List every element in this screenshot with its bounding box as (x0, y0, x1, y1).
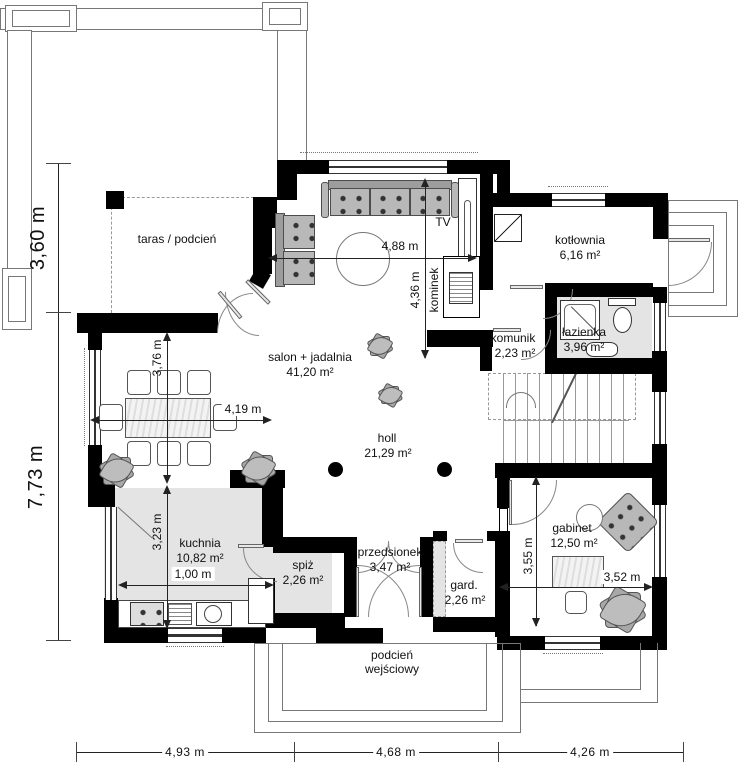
boiler-unit (494, 214, 522, 242)
dim-left-lower-label: 7,73 m (29, 445, 43, 509)
window-dining-west (89, 350, 101, 445)
sofa-small-seat-1 (283, 215, 315, 249)
room-label-przedsionek-area: 3,47 m² (370, 560, 411, 574)
wall-bathroom-south (545, 358, 653, 374)
wall-west-jog (88, 477, 115, 507)
wall-salon-east (480, 160, 493, 290)
kitchen-dishwasher (168, 603, 192, 625)
dining-table (125, 398, 211, 438)
wall-west-b (88, 445, 102, 477)
room-label-taras: taras / podcień (138, 232, 217, 246)
room-label-gabinet-name: gabinet (552, 521, 591, 535)
room-label-przedsionek-name: przedsionek (358, 545, 423, 559)
dim-left-lower-line (58, 313, 59, 641)
sofa-large-seat-2 (370, 188, 410, 216)
room-label-holl-area: 21,29 m² (364, 446, 411, 460)
sofa-large-arm-left (321, 182, 329, 218)
sill-salon-north (300, 152, 478, 153)
dim-dining-height-label: 3,76 m (150, 340, 164, 377)
dim-gabinet-width-arrow-right (644, 583, 653, 591)
dining-chair-top-1 (127, 370, 151, 395)
room-label-lazienka-area: 3,96 m² (564, 340, 605, 354)
dim-salon-height-line (425, 180, 426, 358)
sofa-large-seat-3 (410, 188, 450, 216)
wall-boiler-north-right (605, 193, 668, 207)
room-label-kuchnia-area: 10,82 m² (176, 551, 223, 565)
window-kitchen-west (105, 507, 117, 600)
stairs-rail-line (503, 420, 629, 421)
dim-kitchen-height-label: 3,23 m (150, 514, 164, 551)
pergola-post-bottom-left-inner (8, 276, 26, 322)
pantry-door-arc (243, 548, 277, 582)
room-label-komunik-area: 2,23 m² (495, 346, 536, 360)
wall-pantry-north (273, 537, 344, 553)
wall-east-4 (652, 444, 667, 505)
dim-left-upper-line (58, 163, 59, 313)
wall-boiler-north-left (490, 193, 552, 207)
dim-salon-width-arrow-left (268, 254, 277, 262)
sill-boiler-north (548, 186, 608, 187)
dim-left-lower-tick-bottom (46, 640, 71, 641)
dim-salon-width-arrow-right (468, 254, 477, 262)
toilet-bowl (613, 307, 632, 333)
pergola-post-top-right-inner (269, 8, 301, 25)
wall-wardrobe-north-right (487, 531, 510, 541)
dining-chair-bottom-1 (127, 441, 151, 466)
dim-kitchen-width-line (122, 585, 272, 586)
window-salon-north (329, 160, 447, 174)
room-label-kotlownia-area: 6,16 m² (560, 248, 601, 262)
holl-column-left (328, 462, 343, 477)
room-label-kotlownia-name: kotłownia (555, 233, 605, 247)
room-label-salon-name: salon + jadalnia (268, 350, 352, 364)
boiler-door-leaf (510, 285, 543, 289)
wall-east-2 (653, 287, 667, 303)
pergola-post-top-left-inner (12, 10, 70, 27)
tv-label: TV (435, 215, 450, 229)
sill-kitchen-south (166, 646, 224, 647)
wall-kitchen-north-b (262, 488, 283, 537)
dim-dining-width-arrow-right (263, 416, 272, 424)
dining-chair-bottom-2 (157, 441, 181, 466)
room-label-podcien-wejsciowy: podcień wejściowy (353, 648, 431, 676)
plant-holl-lower (377, 382, 401, 406)
terrace-dashed-edge-left (111, 197, 112, 313)
wall-kitchen-south (222, 628, 266, 643)
floor-plan: 4,88 m 4,36 m 3,76 m 3,23 m 4,19 m 1,00 … (0, 0, 741, 769)
dim-gabinet-width-label: 3,52 m (601, 570, 644, 584)
gabinet-door-arc (512, 480, 557, 525)
wall-west-a (88, 313, 102, 350)
kitchen-sink-bowl (204, 605, 222, 623)
dining-chair-top-3 (187, 370, 211, 395)
window-stairs-east (654, 392, 666, 444)
room-label-holl-name: holl (378, 431, 397, 445)
dim-gabinet-width-arrow-left (499, 583, 508, 591)
window-gabinet-east (654, 505, 666, 577)
dim-kitchen-width-arrow-left (118, 581, 127, 589)
side-steps-inner (668, 225, 714, 293)
wall-below-fireplace (427, 330, 493, 347)
wall-gabinet-north (495, 463, 653, 478)
dim-dining-width-arrow-left (90, 416, 99, 424)
dim-dining-height-arrow-top (163, 332, 171, 341)
dim-gabinet-width-line (503, 587, 651, 588)
kitchen-stove (130, 602, 164, 626)
wall-wardrobe-south (433, 617, 510, 632)
dim-gabinet-height-label: 3,55 m (521, 535, 535, 578)
desk (552, 556, 604, 588)
dim-kitchen-width-label: 1,00 m (172, 567, 215, 581)
fireplace-grate (449, 272, 473, 304)
dim-dining-height-line (167, 334, 168, 482)
porch-extension-inner (521, 643, 641, 690)
plant-holl-upper (366, 332, 392, 358)
dining-chair-left (99, 404, 123, 431)
wall-entrance-left (317, 617, 344, 632)
dim-kitchen-height-line (167, 487, 168, 628)
terrace-dashed-edge-top (112, 197, 254, 198)
dim-bottom-label-2: 4,68 m (373, 745, 419, 759)
dim-dining-height-arrow-bottom (163, 475, 171, 484)
room-label-gard-name: gard. (450, 578, 477, 592)
dim-kitchen-height-arrow-bottom (163, 620, 171, 629)
dim-bottom-tick-1 (76, 742, 77, 762)
wall-east-1 (653, 207, 668, 239)
wall-komunik-stub (480, 347, 492, 371)
wall-wardrobe-north-left (433, 531, 447, 541)
dining-chair-bottom-3 (187, 441, 211, 466)
sofa-large-seat-1 (330, 188, 370, 216)
wardrobe-door-arc (453, 543, 483, 573)
fireplace-label: kominek (427, 268, 441, 313)
dim-bottom-tick-3 (498, 742, 499, 762)
room-label-spiz-area: 2,26 m² (283, 573, 324, 587)
dim-gabinet-height-arrow-bottom (532, 618, 540, 627)
dim-salon-height-arrow-bottom (421, 350, 429, 359)
window-bathroom-east (654, 303, 666, 351)
room-label-gard-area: 2,26 m² (445, 593, 486, 607)
wall-salon-west-b (253, 197, 277, 228)
wall-north-left (277, 160, 329, 174)
room-label-lazienka-name: łazienka (562, 325, 606, 339)
dim-left-upper-label: 3,60 m (31, 206, 45, 270)
sofa-small-seat-2 (283, 251, 315, 285)
dim-salon-height-arrow-top (421, 178, 429, 187)
room-label-gabinet-area: 12,50 m² (550, 536, 597, 550)
window-kitchen-south (168, 628, 222, 643)
plant-gabinet (598, 585, 646, 633)
sill-dining-west (84, 348, 85, 446)
dim-gabinet-height-line (536, 478, 537, 626)
desk-chair (565, 591, 587, 614)
dim-bottom-label-1: 4,93 m (162, 745, 208, 759)
wall-east-3 (652, 351, 667, 392)
dim-left-upper-tick-top (46, 163, 71, 164)
window-boiler-north (552, 193, 605, 207)
holl-column-right (437, 462, 452, 477)
dim-salon-width-line (272, 258, 475, 259)
armchair (597, 491, 659, 553)
dim-dining-width-label: 4,19 m (222, 402, 265, 416)
toilet-tank (608, 298, 636, 306)
room-label-kuchnia-name: kuchnia (179, 536, 220, 550)
dim-salon-width-label: 4,88 m (382, 239, 419, 253)
pergola-right-beam (277, 30, 307, 162)
dim-salon-height-label: 4,36 m (408, 272, 422, 309)
terrace-post (106, 191, 124, 209)
dim-kitchen-height-arrow-top (163, 485, 171, 494)
dim-bottom-label-3: 4,26 m (567, 745, 613, 759)
stairs-treads (503, 373, 629, 463)
room-label-salon-area: 41,20 m² (286, 365, 333, 379)
dim-kitchen-width-arrow-right (265, 581, 274, 589)
room-label-spiz-name: spiż (292, 558, 313, 572)
dim-dining-width-line (94, 420, 270, 421)
room-label-komunik-name: komunik (491, 331, 536, 345)
dim-bottom-tick-2 (294, 742, 295, 762)
dim-gabinet-height-arrow-top (532, 476, 540, 485)
dim-bottom-tick-4 (683, 742, 684, 762)
wall-kitchen-north-a (230, 470, 285, 488)
